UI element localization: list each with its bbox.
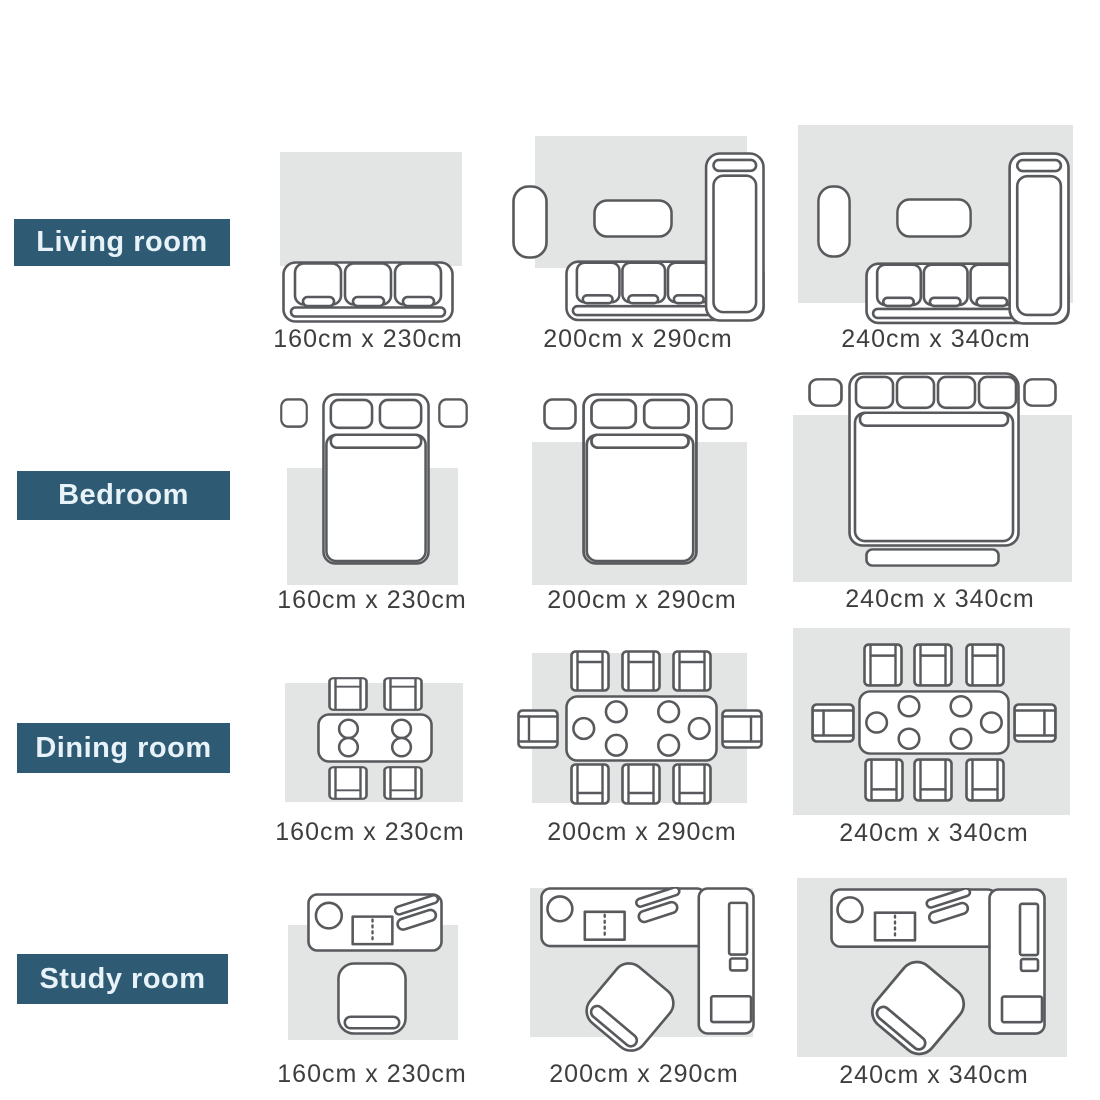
chair-icon xyxy=(572,652,609,691)
row-label-bedroom: Bedroom xyxy=(17,471,230,520)
chair-icon xyxy=(1015,705,1056,742)
chair-icon xyxy=(674,765,711,804)
illustration-dining-240x340 xyxy=(793,628,1070,815)
size-caption-study-1: 160cm x 230cm xyxy=(232,1060,512,1089)
illustration-study-240x340 xyxy=(797,878,1067,1061)
row-label-study-room: Study room xyxy=(17,954,228,1004)
chair-icon xyxy=(674,652,711,691)
chair-icon xyxy=(723,711,762,748)
illustration-living-240x340 xyxy=(798,125,1073,323)
chair-icon xyxy=(967,645,1004,686)
illustrations-canvas xyxy=(0,0,1100,1100)
illustration-bedroom-200x290 xyxy=(532,394,747,585)
bed-icon xyxy=(323,394,428,563)
nightstand-icon xyxy=(810,379,842,405)
rug-area xyxy=(280,152,462,266)
chair-icon xyxy=(519,711,558,748)
chair-icon xyxy=(385,767,422,799)
ottoman-icon xyxy=(818,186,849,256)
chair-icon xyxy=(330,767,367,799)
chair-icon xyxy=(623,765,660,804)
illustration-bedroom-240x340 xyxy=(793,373,1072,582)
illustration-living-200x290 xyxy=(514,136,764,321)
size-caption-dining-3: 240cm x 340cm xyxy=(794,819,1074,848)
chair-icon xyxy=(915,760,952,801)
bench-icon xyxy=(866,549,998,565)
nightstand-icon xyxy=(281,399,307,426)
illustration-study-200x290 xyxy=(530,886,754,1057)
illustration-dining-160x230 xyxy=(285,678,463,802)
chair-icon xyxy=(967,760,1004,801)
size-caption-dining-2: 200cm x 290cm xyxy=(502,818,782,847)
ottoman-icon xyxy=(514,187,547,258)
row-label-dining-room: Dining room xyxy=(17,723,230,773)
illustration-living-160x230 xyxy=(280,152,462,322)
dining-table-icon xyxy=(859,691,1008,753)
nightstand-icon xyxy=(545,400,576,429)
office-chair-icon xyxy=(338,963,405,1033)
nightstand-icon xyxy=(439,399,466,426)
size-caption-bedroom-1: 160cm x 230cm xyxy=(232,586,512,615)
illustration-bedroom-160x230 xyxy=(281,394,466,585)
coffee-table-icon xyxy=(594,200,671,236)
chair-icon xyxy=(623,652,660,691)
desk-icon xyxy=(308,894,443,950)
chair-icon xyxy=(813,705,854,742)
rug-size-guide: Living room Bedroom Dining room Study ro… xyxy=(0,0,1100,1100)
sofa-icon xyxy=(284,263,453,322)
size-caption-study-2: 200cm x 290cm xyxy=(504,1060,784,1089)
chair-icon xyxy=(572,765,609,804)
size-caption-living-3: 240cm x 340cm xyxy=(796,325,1076,354)
chair-icon xyxy=(330,678,367,710)
chair-icon xyxy=(915,645,952,686)
illustration-dining-200x290 xyxy=(519,652,762,804)
nightstand-icon xyxy=(703,400,731,429)
size-caption-living-1: 160cm x 230cm xyxy=(228,325,508,354)
dining-table-icon xyxy=(566,696,716,760)
chair-icon xyxy=(865,645,902,686)
size-caption-living-2: 200cm x 290cm xyxy=(498,325,778,354)
chair-icon xyxy=(866,760,903,801)
bed-icon xyxy=(584,394,697,563)
coffee-table-icon xyxy=(897,200,970,237)
king-bed-icon xyxy=(850,373,1019,545)
nightstand-icon xyxy=(1025,379,1056,405)
row-label-living-room: Living room xyxy=(14,219,230,266)
size-caption-bedroom-2: 200cm x 290cm xyxy=(502,586,782,615)
chair-icon xyxy=(385,678,422,710)
size-caption-bedroom-3: 240cm x 340cm xyxy=(800,585,1080,614)
illustration-study-160x230 xyxy=(288,894,458,1040)
size-caption-dining-1: 160cm x 230cm xyxy=(230,818,510,847)
dining-table-icon xyxy=(318,714,431,761)
size-caption-study-3: 240cm x 340cm xyxy=(794,1061,1074,1090)
